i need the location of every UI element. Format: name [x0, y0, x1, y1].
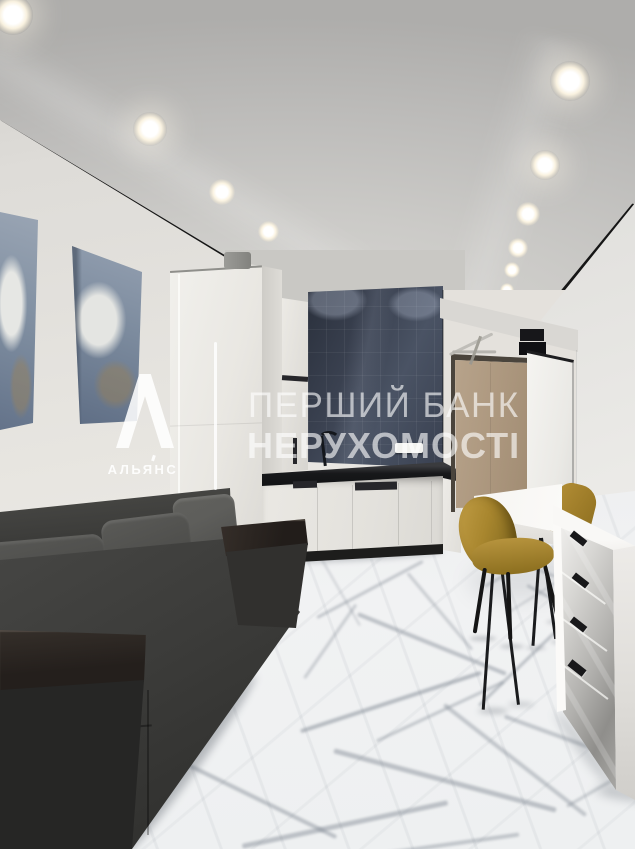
hallway-white-panel	[527, 352, 574, 505]
ceiling-spotlight	[508, 238, 528, 258]
dragonfly-wall-decor	[445, 326, 508, 374]
ceiling-spotlight	[530, 150, 560, 180]
entrance-door-panel-line	[490, 363, 491, 505]
base-cabinet-seam-1	[317, 487, 318, 551]
hallway-corner-line	[576, 350, 577, 500]
light-switch-plate	[395, 443, 423, 453]
base-cabinet-seam-3	[398, 483, 399, 545]
ceiling-spotlight	[209, 179, 235, 205]
ceiling-spotlight	[258, 221, 279, 242]
base-cabinet-seam-2	[352, 485, 353, 549]
apartment-photo: АЛЬЯНС ПЕРШИЙ БАНК НЕРУХОМОСТІ	[0, 0, 635, 849]
ceiling-spotlight	[504, 262, 520, 278]
kitchen-tall-cabinet-seam	[178, 274, 180, 566]
kitchen-tall-cabinet	[170, 266, 262, 572]
intercom-box-upper	[520, 329, 544, 341]
base-cabinet-handle-2	[355, 481, 397, 490]
entrance-door	[455, 360, 527, 508]
base-cabinet-seam-4	[431, 481, 432, 543]
moon-painting-left	[0, 212, 38, 430]
vent-pipe	[224, 252, 251, 269]
moon-painting-right	[72, 245, 142, 424]
base-cabinet-handle-1	[293, 481, 317, 489]
ceiling-spotlight	[516, 202, 540, 226]
ceiling-spotlight	[0, 0, 33, 35]
kitchen-oven-handle	[293, 438, 297, 464]
ceiling-spotlight	[133, 112, 167, 146]
ceiling-spotlight	[550, 61, 590, 101]
hallway-white-panel-edge	[572, 362, 574, 500]
